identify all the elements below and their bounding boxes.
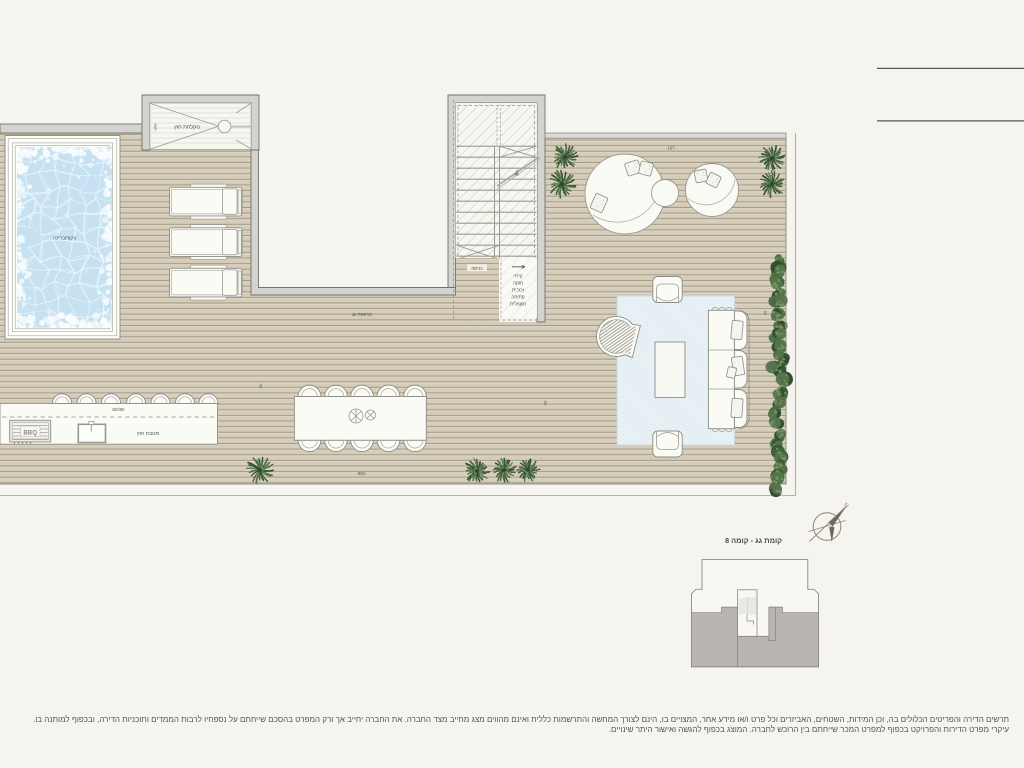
svg-text:זכוכית: זכוכית (512, 287, 524, 292)
svg-text:-853-: -853- (357, 471, 367, 476)
svg-text:מטבח חוץ: מטבח חוץ (137, 431, 160, 437)
svg-text:חשמלית: חשמלית (510, 301, 527, 306)
svg-text:מקלחת חוץ: מקלחת חוץ (174, 124, 200, 131)
svg-text:קירוי: קירוי (514, 273, 523, 278)
svg-text:מרפסת גג: מרפסת גג (352, 312, 372, 317)
svg-text:BBQ: BBQ (23, 430, 37, 437)
svg-text:-100-: -100- (154, 122, 158, 131)
svg-text:-107-: -107- (666, 146, 676, 151)
svg-text:פתיחה: פתיחה (511, 294, 524, 299)
svg-text:-90-: -90- (764, 309, 768, 316)
svg-text:-90-: -90- (259, 382, 263, 389)
svg-text:כניסה: כניסה (471, 266, 483, 271)
svg-text:430/90: 430/90 (112, 407, 125, 412)
svg-text:קומת גג - קומה 8: קומת גג - קומה 8 (725, 536, 782, 545)
svg-text:-90-: -90- (544, 399, 548, 406)
svg-text:ג'קוזי/בריכה: ג'קוזי/בריכה (53, 236, 76, 242)
svg-text:חופה: חופה (513, 280, 523, 285)
